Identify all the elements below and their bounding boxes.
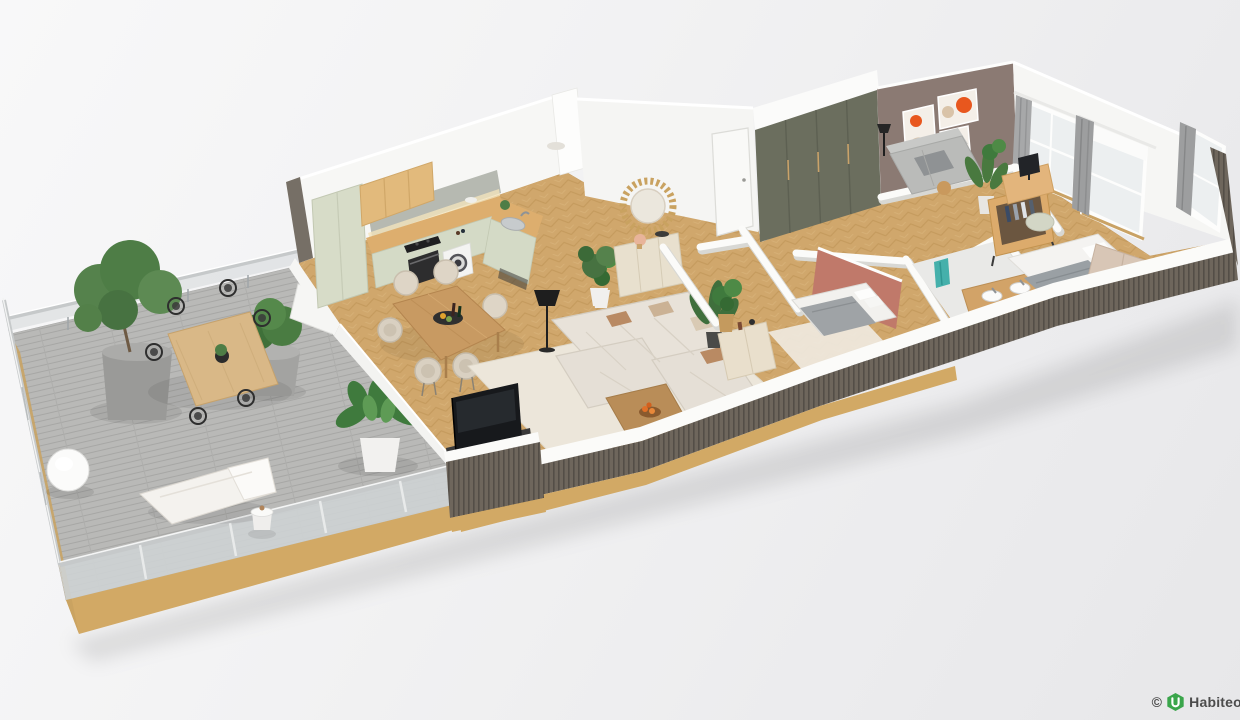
copyright-symbol: © <box>1152 694 1163 710</box>
floorplan-render: © Habiteo. <box>0 0 1240 720</box>
office-side-table <box>937 181 951 195</box>
brand-name: Habiteo. <box>1189 694 1240 710</box>
floorplan-canvas <box>0 0 1240 720</box>
kitchen-fridge-unit <box>312 184 368 308</box>
habiteo-logo-icon <box>1167 693 1184 711</box>
watermark: © Habiteo. <box>1152 693 1240 711</box>
entry-door <box>712 128 753 236</box>
master-pouf <box>1026 213 1054 231</box>
